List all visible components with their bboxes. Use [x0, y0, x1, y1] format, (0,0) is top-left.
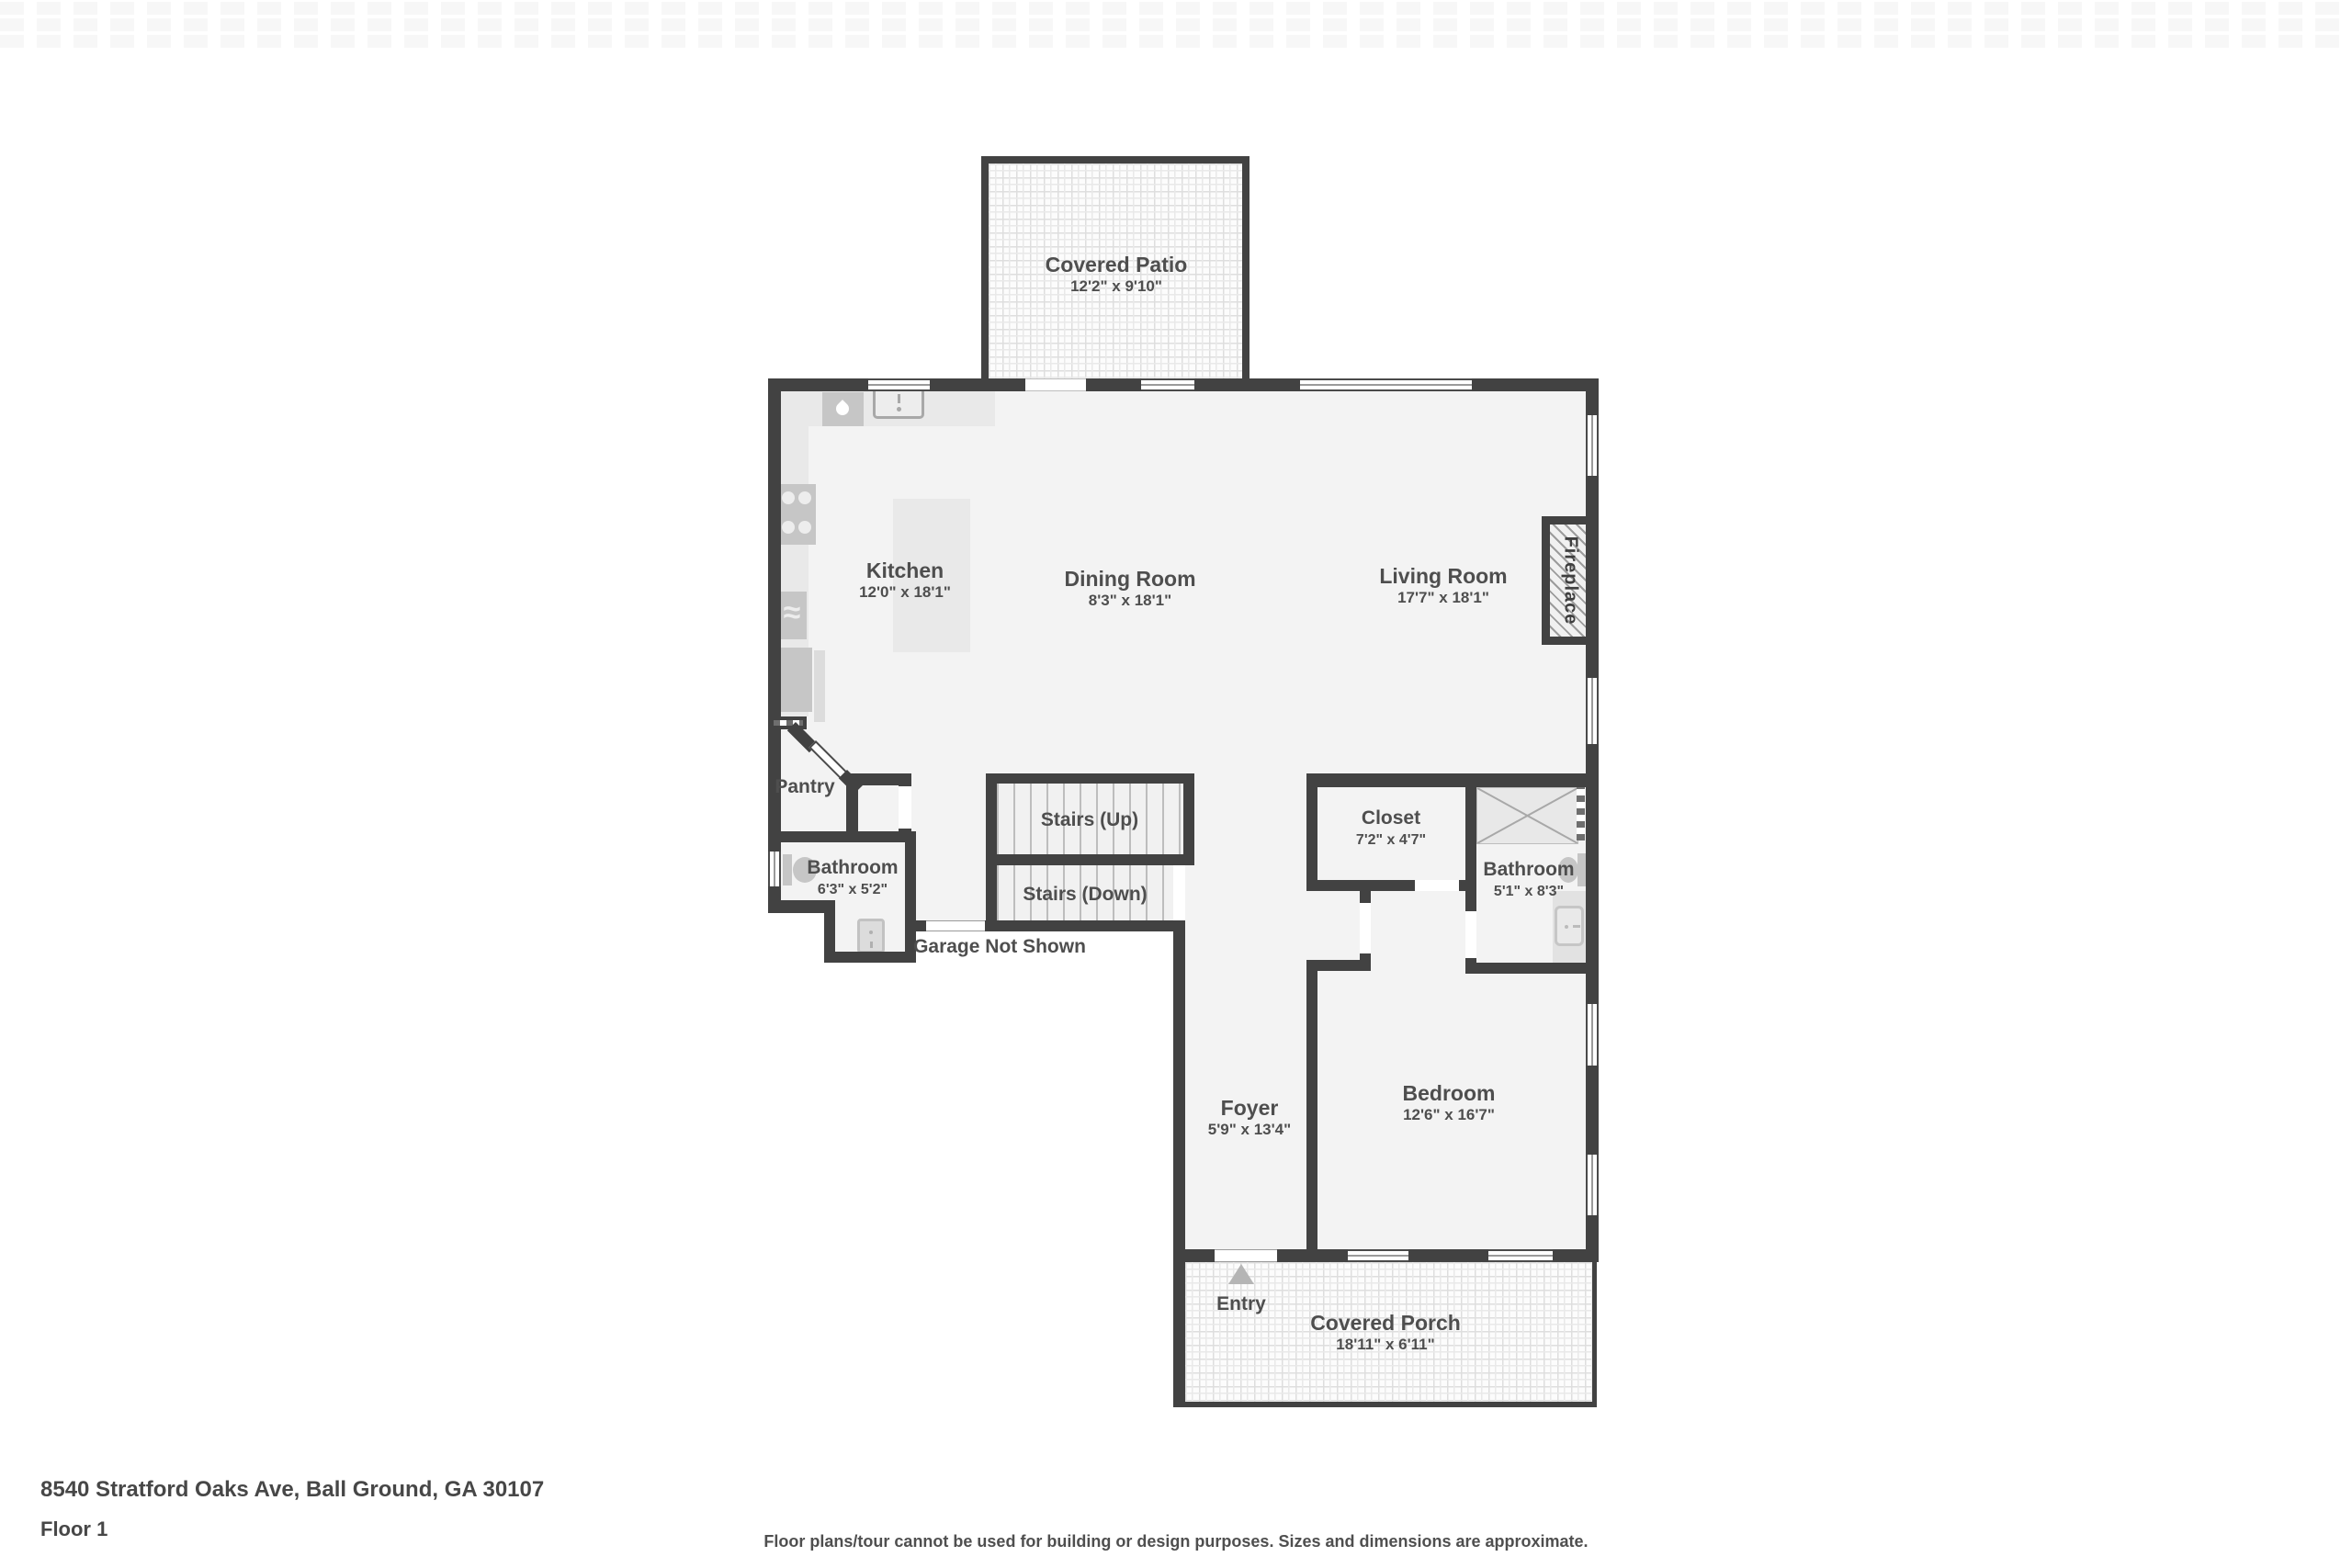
- wall: [1306, 773, 1599, 787]
- wall: [1173, 920, 1185, 1262]
- shower-icon: [1476, 787, 1578, 844]
- wall: [1360, 891, 1371, 903]
- oven-icon: ≈: [777, 592, 807, 639]
- fireplace-hatch: Fireplace: [1550, 525, 1590, 637]
- patio-door-opening: [1025, 378, 1086, 391]
- room-label-stairs-down: Stairs (Down): [1023, 883, 1147, 907]
- wall: [986, 773, 1194, 784]
- dot: [1565, 925, 1568, 929]
- label-entry: Entry: [1216, 1292, 1266, 1316]
- disclaimer-text: Floor plans/tour cannot be used for buil…: [0, 1532, 2352, 1551]
- wall: [1592, 1262, 1597, 1402]
- room-label-closet: Closet 7'2" x 4'7": [1356, 807, 1426, 851]
- room-label-covered-porch: Covered Porch 18'11" x 6'11": [1310, 1311, 1461, 1355]
- door-opening-bathroom: [1465, 911, 1476, 958]
- room-label-foyer: Foyer 5'9" x 13'4": [1208, 1096, 1291, 1140]
- fridge-icon: [777, 648, 812, 712]
- oven-wave-glyph: ≈: [784, 595, 801, 630]
- room-label-kitchen: Kitchen 12'0" x 18'1": [859, 558, 951, 603]
- room-label-bathroom-2: Bathroom 5'1" x 8'3": [1483, 858, 1574, 902]
- window: [1488, 1249, 1553, 1262]
- room-label-pantry: Pantry: [775, 775, 834, 799]
- window: [768, 852, 781, 886]
- floor-plan-page: { "rooms": { "covered_patio": {"label": …: [0, 0, 2352, 1568]
- wall: [986, 773, 997, 931]
- door-opening-garage: [926, 920, 985, 931]
- address-text: 8540 Stratford Oaks Ave, Ball Ground, GA…: [40, 1477, 544, 1503]
- window: [1300, 378, 1472, 391]
- dot: [870, 942, 873, 948]
- foyer-floor: [1185, 931, 1320, 1249]
- wall: [981, 156, 1249, 164]
- cabinet-panel: [814, 650, 825, 722]
- dot: [869, 931, 873, 934]
- window: [868, 378, 930, 391]
- alcove-floor: [1371, 880, 1476, 971]
- dishwasher-droplet-icon: [822, 392, 864, 426]
- drain-icon: [897, 407, 901, 412]
- room-label-living-room: Living Room 17'7" x 18'1": [1379, 564, 1507, 608]
- door-opening-closet: [1415, 880, 1459, 891]
- wall: [1242, 156, 1249, 380]
- wall: [768, 831, 912, 842]
- room-label-fireplace: Fireplace: [1560, 536, 1581, 626]
- floor-plan: ≈ Fireplace: [0, 0, 2352, 1568]
- window: [1586, 1155, 1599, 1215]
- label-garage-not-shown: Garage Not Shown: [913, 935, 1086, 959]
- wall: [1173, 1402, 1597, 1407]
- window: [1586, 415, 1599, 476]
- room-label-dining-room: Dining Room 8'3" x 18'1": [1064, 567, 1195, 611]
- wall: [1465, 773, 1476, 911]
- window: [1586, 1004, 1599, 1066]
- wall: [1465, 963, 1599, 974]
- wall: [1586, 378, 1599, 1262]
- wall: [1306, 773, 1317, 891]
- entry-arrow-icon: [1228, 1264, 1254, 1284]
- door-opening-front: [1215, 1249, 1277, 1262]
- corridor-floor: [905, 773, 997, 931]
- faucet-icon: [898, 394, 900, 403]
- window: [1141, 378, 1194, 391]
- toilet-icon: [783, 854, 792, 886]
- door-opening: [899, 786, 911, 829]
- wall: [1183, 773, 1194, 865]
- vanity-sink-icon: [1555, 906, 1584, 946]
- door-opening-bedroom: [1360, 903, 1371, 953]
- shower-door-icon: [1577, 785, 1585, 840]
- wall: [986, 854, 1194, 865]
- wall: [1306, 960, 1317, 1262]
- toilet-icon: [1577, 853, 1586, 886]
- dash: [1573, 925, 1580, 928]
- room-label-bedroom: Bedroom 12'6" x 16'7": [1403, 1081, 1496, 1125]
- wall: [899, 773, 911, 786]
- wall: [1173, 1262, 1185, 1407]
- hallway-floor: [1185, 773, 1309, 931]
- water-heater-icon: [857, 919, 885, 953]
- room-label-stairs-up: Stairs (Up): [1041, 808, 1138, 832]
- droplet-icon: [833, 400, 852, 418]
- door-opening-stairs: [1173, 865, 1185, 920]
- window: [1348, 1249, 1408, 1262]
- stove-burners-icon: [777, 484, 816, 545]
- window: [1586, 678, 1599, 744]
- room-label-covered-patio: Covered Patio 12'2" x 9'10": [1046, 253, 1188, 297]
- wall: [981, 156, 989, 380]
- room-label-bathroom-1: Bathroom 6'3" x 5'2": [807, 856, 898, 900]
- wall: [824, 952, 916, 963]
